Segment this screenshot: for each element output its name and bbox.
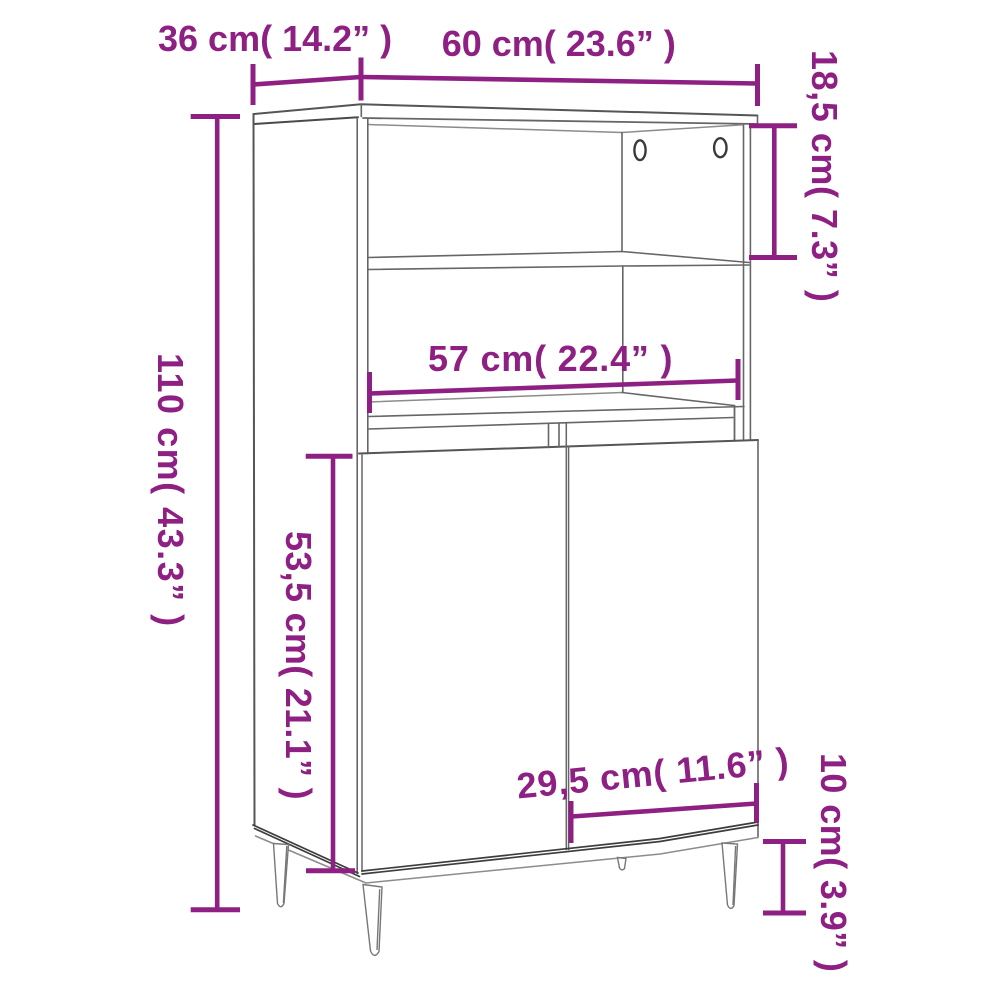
svg-text:60 cm( 23.6” ): 60 cm( 23.6” ) [442, 23, 676, 64]
svg-text:29,5 cm( 11.6” ): 29,5 cm( 11.6” ) [515, 739, 791, 806]
svg-text:36 cm( 14.2” ): 36 cm( 14.2” ) [158, 18, 392, 59]
svg-text:10 cm( 3.9” ): 10 cm( 3.9” ) [813, 753, 854, 972]
svg-text:18,5 cm( 7.3” ): 18,5 cm( 7.3” ) [804, 50, 845, 302]
svg-text:53,5 cm( 21.1” ): 53,5 cm( 21.1” ) [278, 531, 319, 800]
svg-text:110 cm( 43.3” ): 110 cm( 43.3” ) [150, 353, 191, 628]
svg-text:57 cm( 22.4” ): 57 cm( 22.4” ) [428, 338, 673, 379]
